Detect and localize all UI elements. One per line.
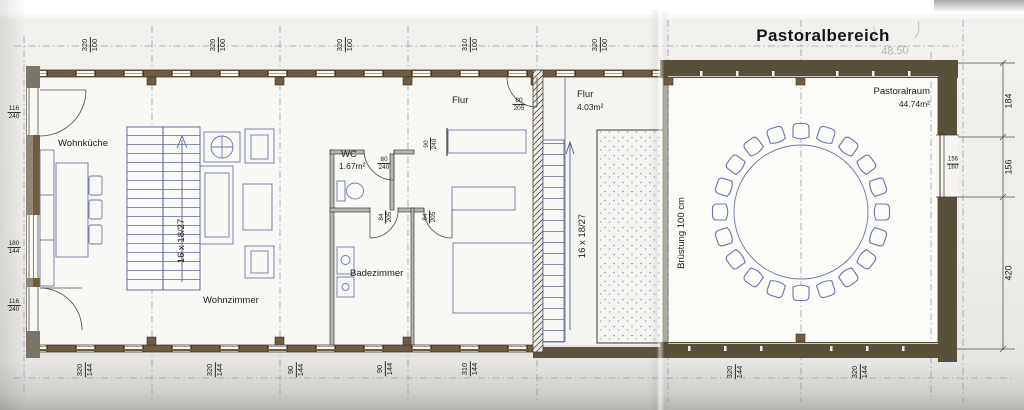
dim-bottom-7: 320144: [851, 365, 869, 380]
room-label-wohnzimmer: Wohnzimmer: [203, 296, 259, 306]
dim-left-3: 116240: [8, 298, 21, 314]
dim-bottom-6: 320144: [726, 365, 744, 380]
dim-top-4: 310100: [461, 38, 479, 53]
paper-fold-crease: [648, 10, 670, 410]
room-label-flur-main: Flur: [577, 90, 593, 100]
dim-right-156: 156: [1004, 159, 1013, 174]
dim-bottom-5: 310144: [461, 362, 479, 377]
scan-corner-shadow: [934, 0, 1024, 12]
floor-plan-drawing: [0, 0, 1024, 410]
dim-room-door: 84205: [422, 211, 438, 224]
faint-handwritten-number: 48.50: [881, 46, 909, 59]
dim-top-3: 320100: [336, 38, 354, 53]
dim-bad-door: 84205: [378, 211, 394, 224]
room-area-wc: 1.67m²: [339, 162, 365, 171]
dim-right-420: 420: [1004, 265, 1013, 280]
room-label-wc: WC: [341, 150, 357, 160]
room-label-wohnkueche: Wohnküche: [58, 139, 108, 149]
room-label-pastoralraum: Pastoralraum: [874, 87, 931, 97]
dim-wc-door: 80240: [378, 156, 391, 172]
left-stair: [127, 127, 200, 290]
dim-right-184: 184: [1004, 93, 1013, 108]
dim-right-window: 156160: [947, 157, 959, 172]
dim-mid-window: 90240: [423, 138, 439, 151]
floor-plan-page: Pastoralbereich 48.50 Wohnküche Wohnzimm…: [0, 0, 1024, 410]
dim-left-2: 180144: [8, 240, 21, 256]
dim-flur-door: 80205: [513, 97, 526, 113]
dim-top-5: 320100: [591, 38, 609, 53]
entry-door-top-opening: [27, 88, 40, 135]
dim-bottom-1: 320144: [76, 363, 94, 378]
stair-label-right: 16 x 18/27: [578, 214, 588, 258]
window-left-opening: [27, 215, 40, 278]
room-area-pastoralraum: 44.74m²: [899, 100, 930, 109]
room-label-flur-small: Flur: [452, 96, 468, 106]
plan-title: Pastoralbereich: [756, 27, 890, 45]
dim-top-2: 320100: [209, 38, 227, 53]
parapet-label: Brüstung 100 cm: [677, 197, 687, 269]
dim-bottom-4: 90144: [376, 362, 394, 377]
dim-bottom-2: 320144: [206, 363, 224, 378]
dim-left-1: 116240: [8, 105, 21, 121]
entry-door-bottom-opening: [27, 287, 40, 331]
room-area-flur-main: 4.03m²: [577, 103, 603, 112]
room-label-badezimmer: Badezimmer: [350, 269, 403, 279]
dim-bottom-3: 90144: [287, 363, 305, 378]
dim-top-1: 320100: [81, 38, 99, 53]
stair-label-left: 16 x 18/27: [177, 219, 187, 263]
hatched-wall: [533, 70, 543, 352]
